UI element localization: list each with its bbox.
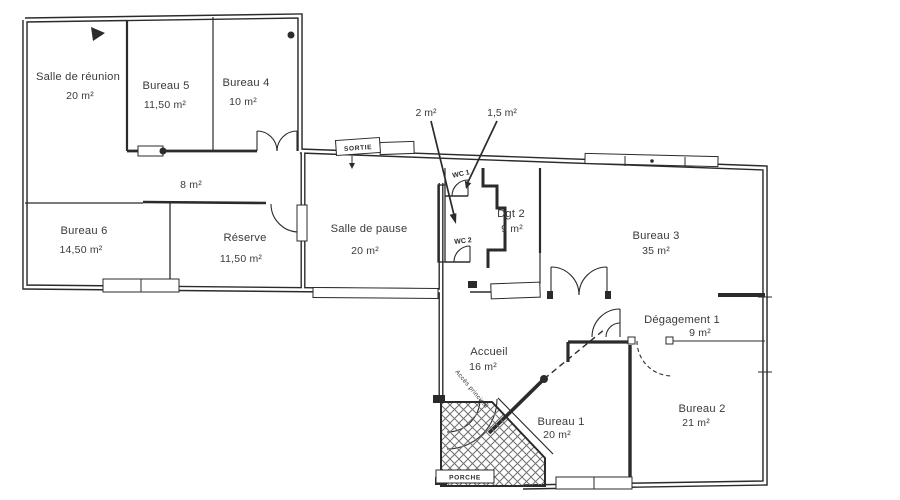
floor-plan-canvas: PORCHE SORTIE 2 m² 1,5 m² Salle de réuni… xyxy=(0,0,900,500)
door-post xyxy=(547,291,553,299)
sortie-sign: SORTIE xyxy=(335,137,380,155)
callout-wc1-area: 1,5 m² xyxy=(487,107,517,119)
room-name: Bureau 2 xyxy=(678,403,725,415)
room-label-accueil: Accueil 16 m² xyxy=(469,346,508,373)
room-name: Salle de pause xyxy=(331,223,408,235)
room-name: Bureau 6 xyxy=(60,225,107,237)
room-name: Dgt 2 xyxy=(497,208,525,220)
room-area: 16 m² xyxy=(469,361,497,373)
room-name: Salle de réunion xyxy=(36,71,120,83)
callout-arrow-head xyxy=(450,213,457,224)
room-label-bureau-4: Bureau 4 10 m² xyxy=(222,77,269,108)
wc-block xyxy=(438,168,505,268)
wc1-label: WC 1 xyxy=(452,169,471,180)
degagement1-dashed-door xyxy=(637,341,672,376)
room-label-bureau-1: Bureau 1 20 m² xyxy=(537,416,584,441)
door-post xyxy=(605,291,611,299)
room-labels: Salle de réunion 20 m² Bureau 5 11,50 m²… xyxy=(36,71,726,441)
frame-pause-left xyxy=(297,205,307,241)
room-area: 11,50 m² xyxy=(144,99,187,111)
room-name: Bureau 4 xyxy=(222,77,269,89)
room-area: 20 m² xyxy=(351,245,379,257)
degagement1-door-post xyxy=(666,337,673,344)
room-label-salle-de-reunion: Salle de réunion 20 m² xyxy=(36,71,120,102)
entrance-fan-door xyxy=(592,309,620,337)
accueil-top-door-frame xyxy=(491,282,540,299)
room-label-bureau-5: Bureau 5 11,50 m² xyxy=(142,80,189,111)
room-label-couloir: 8 m² xyxy=(180,179,202,191)
entrance-diagonal-dashed xyxy=(544,329,605,379)
bureau4-double-door xyxy=(257,131,297,151)
door-frame xyxy=(138,146,163,156)
sill-pause-bottom xyxy=(313,287,438,298)
room-area: 10 m² xyxy=(229,96,257,108)
room-area: 20 m² xyxy=(66,90,94,102)
floor-plan-page: PORCHE SORTIE 2 m² 1,5 m² Salle de réuni… xyxy=(0,0,900,500)
callout-wc2-area: 2 m² xyxy=(416,107,438,119)
room-area: 8 m² xyxy=(180,179,202,191)
room-label-dgt-2: Dgt 2 9 m² xyxy=(497,208,525,235)
room-label-reserve: Réserve 11,50 m² xyxy=(220,232,267,265)
wall-stub xyxy=(468,281,477,288)
corner-pennant xyxy=(91,27,105,41)
room-area: 14,50 m² xyxy=(59,244,102,256)
window-top-center xyxy=(380,141,414,154)
windows xyxy=(103,141,718,489)
annotation-arrows: 2 m² 1,5 m² xyxy=(416,107,518,224)
pivot-dot xyxy=(288,32,295,39)
window-dot xyxy=(650,159,654,163)
wall-couloir-bottom xyxy=(143,202,266,203)
pivot-dot xyxy=(160,148,167,155)
room-name: Bureau 1 xyxy=(537,416,584,428)
porch-wall-stub xyxy=(433,395,445,403)
room-name: Accueil xyxy=(470,346,507,358)
room-area: 35 m² xyxy=(642,245,670,257)
porch: PORCHE xyxy=(433,395,553,486)
sortie-arrow-head xyxy=(349,163,355,169)
room-area: 11,50 m² xyxy=(220,253,263,265)
room-name: Réserve xyxy=(223,232,266,244)
bureau3-double-door xyxy=(551,267,607,295)
room-label-bureau-2: Bureau 2 21 m² xyxy=(678,403,725,429)
room-name: Bureau 5 xyxy=(142,80,189,92)
room-area: 9 m² xyxy=(501,223,523,235)
room-label-salle-de-pause: Salle de pause 20 m² xyxy=(331,223,408,257)
room-area: 20 m² xyxy=(543,429,571,441)
room-label-bureau-3: Bureau 3 35 m² xyxy=(632,230,679,257)
room-name: Bureau 3 xyxy=(632,230,679,242)
room-area: 21 m² xyxy=(682,417,710,429)
degagement1-door-post xyxy=(628,337,635,344)
porche-sign-label: PORCHE xyxy=(449,475,481,482)
room-label-degagement-1: Dégagement 1 9 m² xyxy=(644,314,720,339)
room-area: 9 m² xyxy=(689,327,711,339)
wc2-label: WC 2 xyxy=(454,237,472,246)
wc2-door xyxy=(454,246,470,262)
pivot-dot xyxy=(540,375,548,383)
reserve-door-arc xyxy=(271,204,299,232)
room-name: Dégagement 1 xyxy=(644,314,720,326)
room-label-bureau-6: Bureau 6 14,50 m² xyxy=(59,225,107,256)
